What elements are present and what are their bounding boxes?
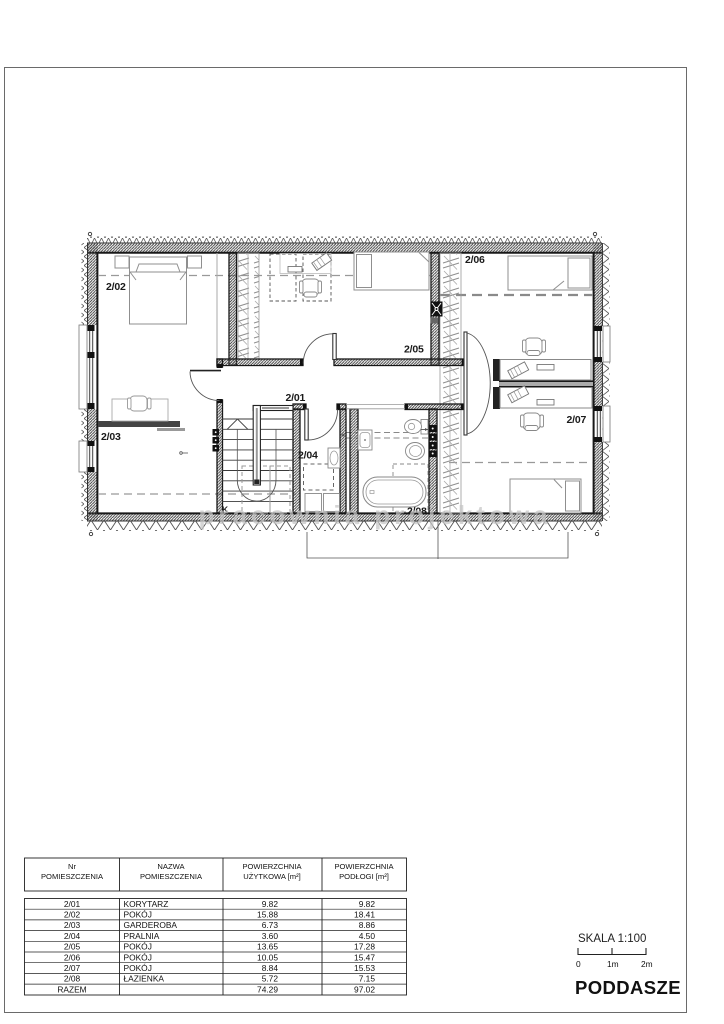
svg-text:2/01: 2/01 bbox=[64, 899, 81, 909]
svg-text:1m: 1m bbox=[607, 959, 619, 969]
svg-text:0: 0 bbox=[576, 959, 581, 969]
svg-text:17.28: 17.28 bbox=[354, 942, 375, 952]
svg-text:2/07: 2/07 bbox=[567, 414, 587, 426]
svg-text:2/02: 2/02 bbox=[64, 910, 81, 920]
svg-text:2/06: 2/06 bbox=[64, 952, 81, 962]
svg-text:4.50: 4.50 bbox=[359, 931, 376, 941]
svg-text:NAZWA: NAZWA bbox=[157, 862, 185, 871]
svg-text:2/03: 2/03 bbox=[101, 431, 121, 443]
svg-text:6.73: 6.73 bbox=[262, 920, 279, 930]
svg-text:RAZEM: RAZEM bbox=[57, 984, 86, 994]
svg-text:POKÓJ: POKÓJ bbox=[124, 952, 152, 962]
svg-text:2/04: 2/04 bbox=[298, 450, 318, 462]
svg-text:GARDEROBA: GARDEROBA bbox=[124, 920, 178, 930]
svg-text:10.05: 10.05 bbox=[257, 952, 278, 962]
svg-text:ŁAZIENKA: ŁAZIENKA bbox=[124, 974, 165, 984]
svg-text:PODDASZE: PODDASZE bbox=[575, 977, 681, 998]
svg-text:2/05: 2/05 bbox=[404, 344, 424, 356]
svg-text:POWIERZCHNIA: POWIERZCHNIA bbox=[334, 862, 394, 871]
svg-text:KORYTARZ: KORYTARZ bbox=[124, 899, 169, 909]
svg-text:15.53: 15.53 bbox=[354, 963, 375, 973]
svg-text:2/05: 2/05 bbox=[64, 942, 81, 952]
svg-text:POKÓJ: POKÓJ bbox=[124, 910, 152, 920]
svg-text:15.88: 15.88 bbox=[257, 910, 278, 920]
svg-text:POMIESZCZENIA: POMIESZCZENIA bbox=[41, 872, 104, 881]
svg-text:18.41: 18.41 bbox=[354, 910, 375, 920]
svg-text:8.86: 8.86 bbox=[359, 920, 376, 930]
svg-text:97.02: 97.02 bbox=[354, 984, 375, 994]
svg-text:PODŁOGI [m²]: PODŁOGI [m²] bbox=[339, 872, 389, 881]
svg-text:POWIERZCHNIA: POWIERZCHNIA bbox=[242, 862, 302, 871]
svg-text:15.47: 15.47 bbox=[354, 952, 375, 962]
svg-text:pracownia projektowa: pracownia projektowa bbox=[198, 500, 551, 530]
svg-text:2/02: 2/02 bbox=[106, 281, 126, 293]
svg-text:2/04: 2/04 bbox=[64, 931, 81, 941]
svg-text:9.82: 9.82 bbox=[359, 899, 376, 909]
svg-text:74.29: 74.29 bbox=[257, 984, 278, 994]
svg-text:9.82: 9.82 bbox=[262, 899, 279, 909]
svg-text:POKÓJ: POKÓJ bbox=[124, 942, 152, 952]
svg-text:2/07: 2/07 bbox=[64, 963, 81, 973]
svg-text:SKALA 1:100: SKALA 1:100 bbox=[578, 933, 646, 945]
svg-text:POMIESZCZENIA: POMIESZCZENIA bbox=[140, 872, 203, 881]
svg-text:2/01: 2/01 bbox=[286, 392, 306, 404]
svg-text:UŻYTKOWA [m²]: UŻYTKOWA [m²] bbox=[243, 872, 301, 881]
svg-text:PRALNIA: PRALNIA bbox=[124, 931, 160, 941]
svg-text:8.84: 8.84 bbox=[262, 963, 279, 973]
svg-text:7.15: 7.15 bbox=[359, 974, 376, 984]
svg-text:POKÓJ: POKÓJ bbox=[124, 963, 152, 973]
svg-text:2/06: 2/06 bbox=[465, 254, 485, 266]
svg-text:2/08: 2/08 bbox=[64, 974, 81, 984]
svg-text:13.65: 13.65 bbox=[257, 942, 278, 952]
svg-text:Nr: Nr bbox=[68, 862, 76, 871]
svg-text:2/03: 2/03 bbox=[64, 920, 81, 930]
svg-text:2m: 2m bbox=[641, 959, 653, 969]
svg-text:3.60: 3.60 bbox=[262, 931, 279, 941]
svg-text:5.72: 5.72 bbox=[262, 974, 279, 984]
